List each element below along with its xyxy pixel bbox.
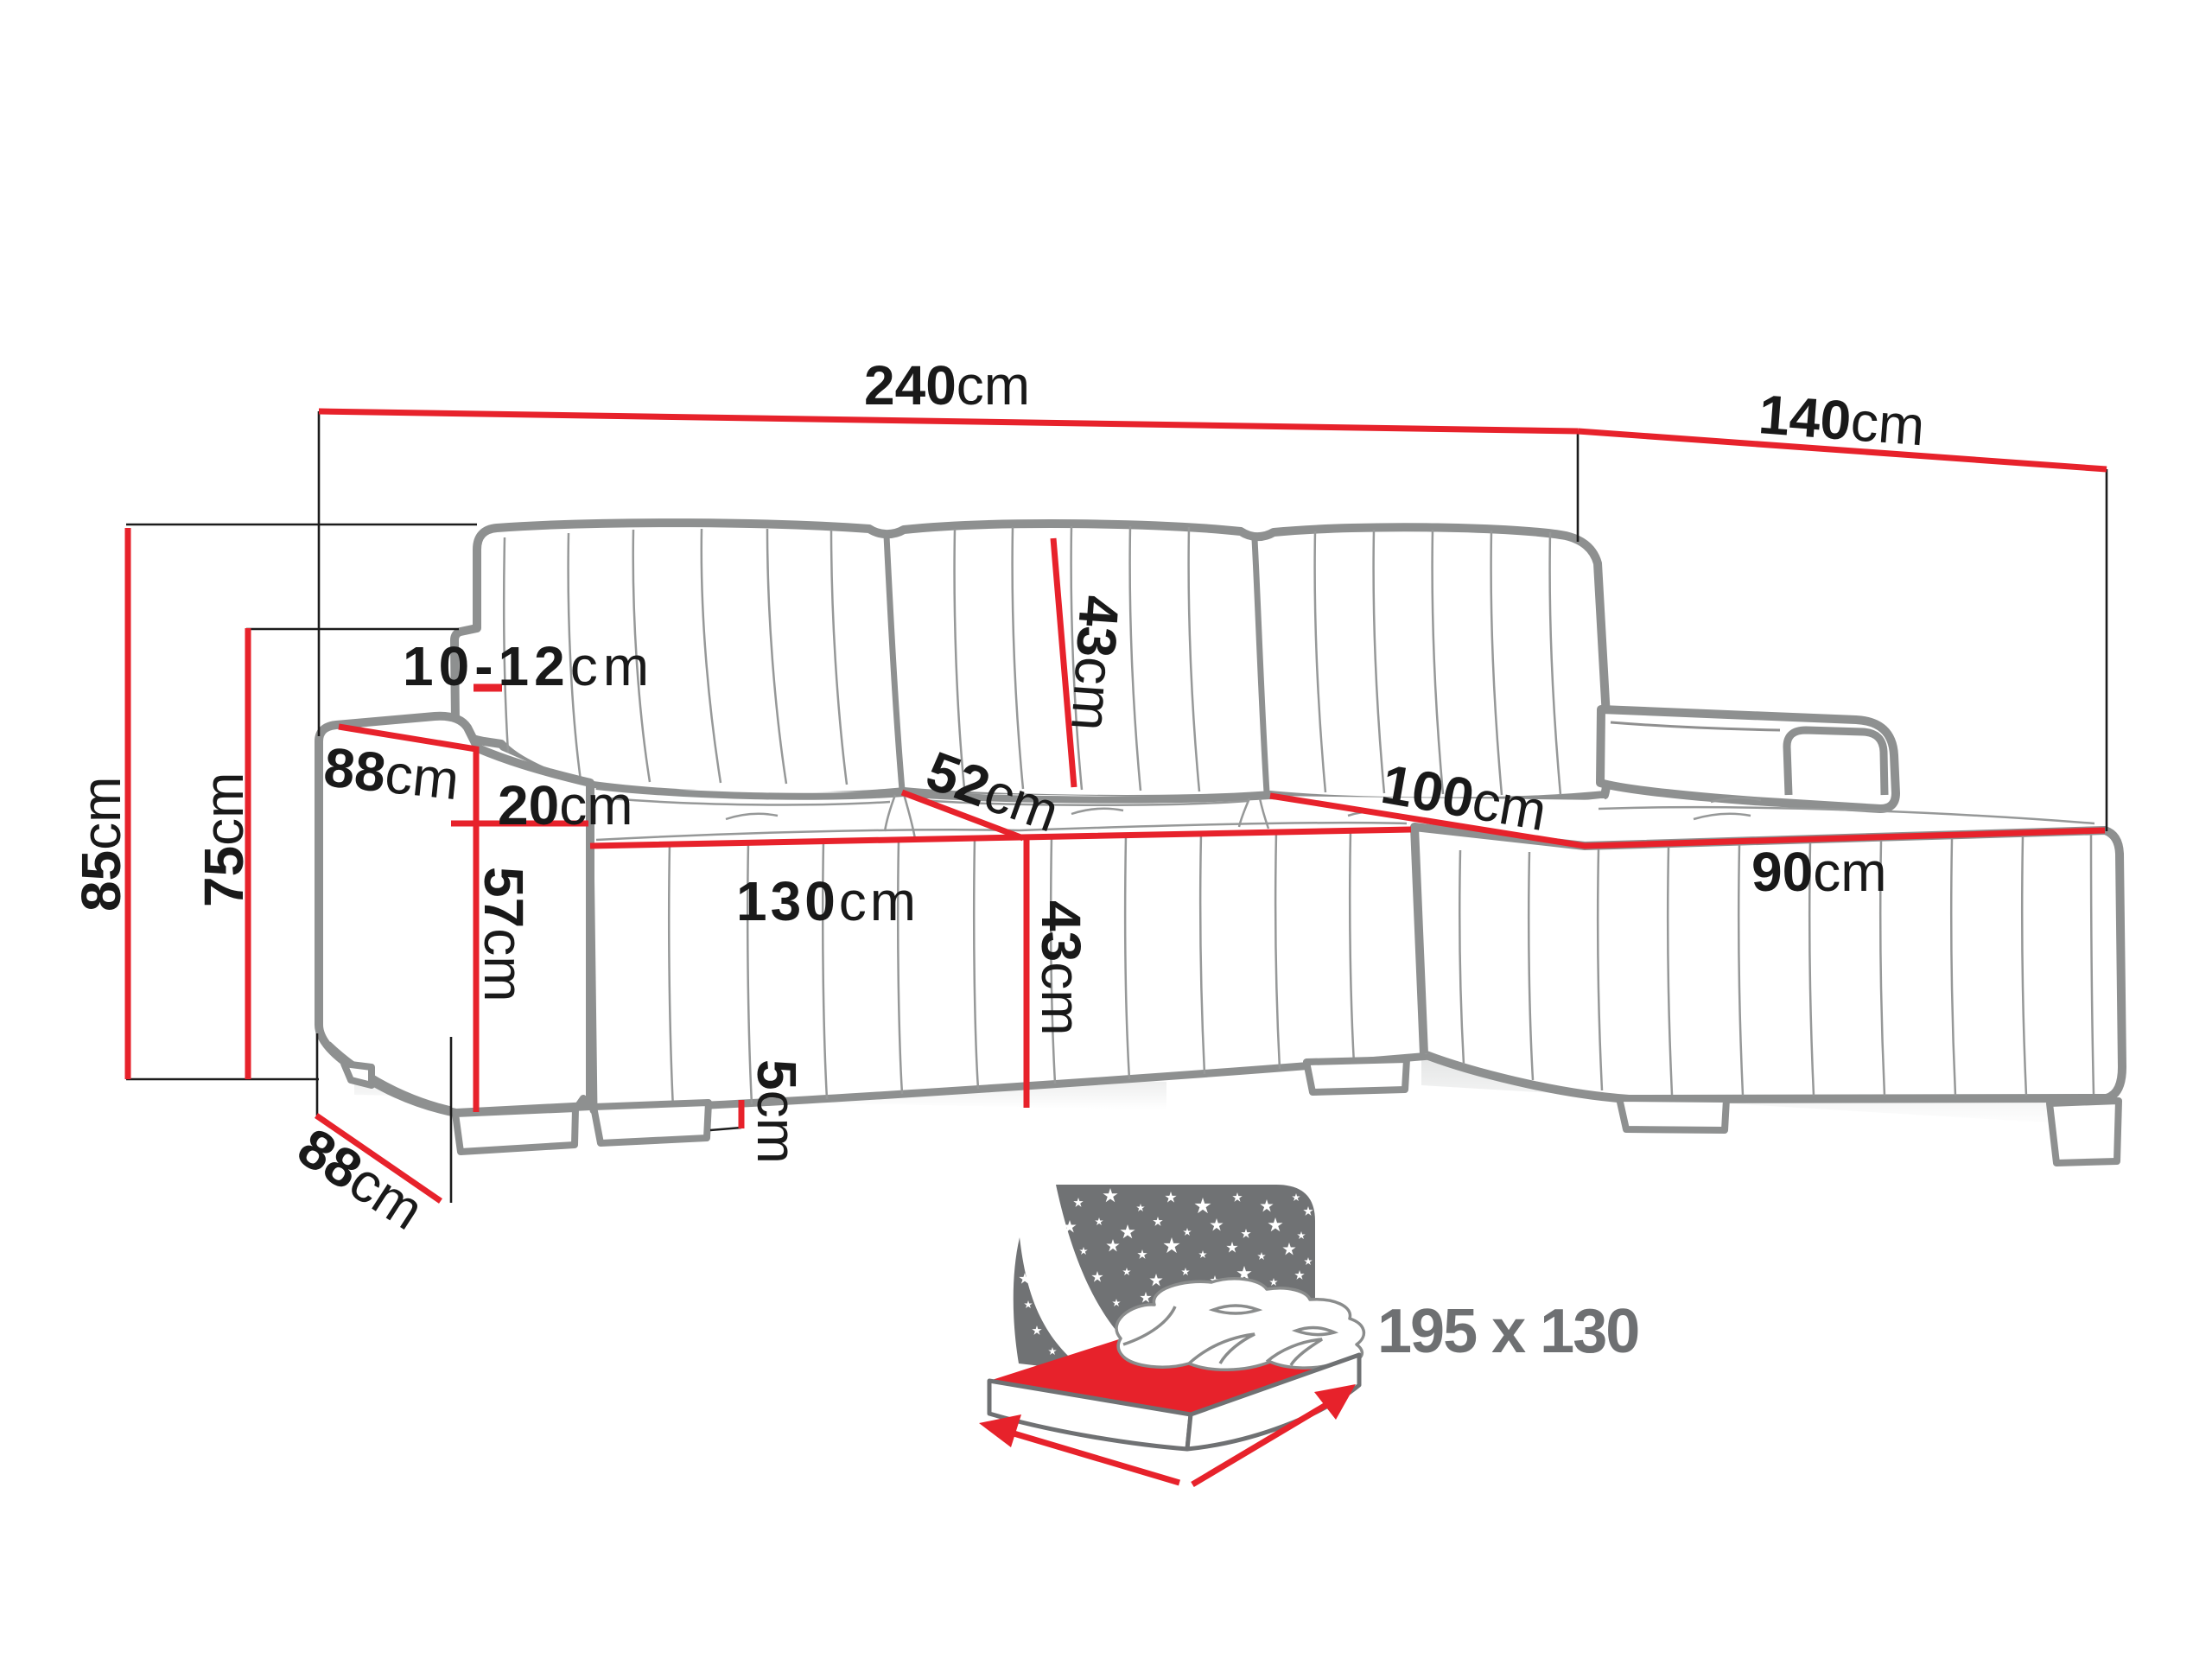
svg-text:90cm: 90cm [1751, 841, 1887, 903]
svg-text:240cm: 240cm [864, 354, 1030, 416]
svg-text:195 x 130: 195 x 130 [1377, 1297, 1638, 1366]
svg-text:20cm: 20cm [498, 774, 633, 836]
svg-text:75cm: 75cm [193, 772, 255, 908]
svg-text:43cm: 43cm [1030, 900, 1092, 1036]
svg-text:43cm: 43cm [1059, 594, 1131, 733]
svg-text:10-12cm: 10-12cm [403, 635, 654, 697]
svg-text:130cm: 130cm [736, 870, 919, 932]
svg-text:140cm: 140cm [1757, 383, 1927, 457]
svg-text:85cm: 85cm [70, 777, 132, 912]
svg-text:57cm: 57cm [473, 867, 535, 1002]
svg-text:5cm: 5cm [746, 1059, 808, 1164]
